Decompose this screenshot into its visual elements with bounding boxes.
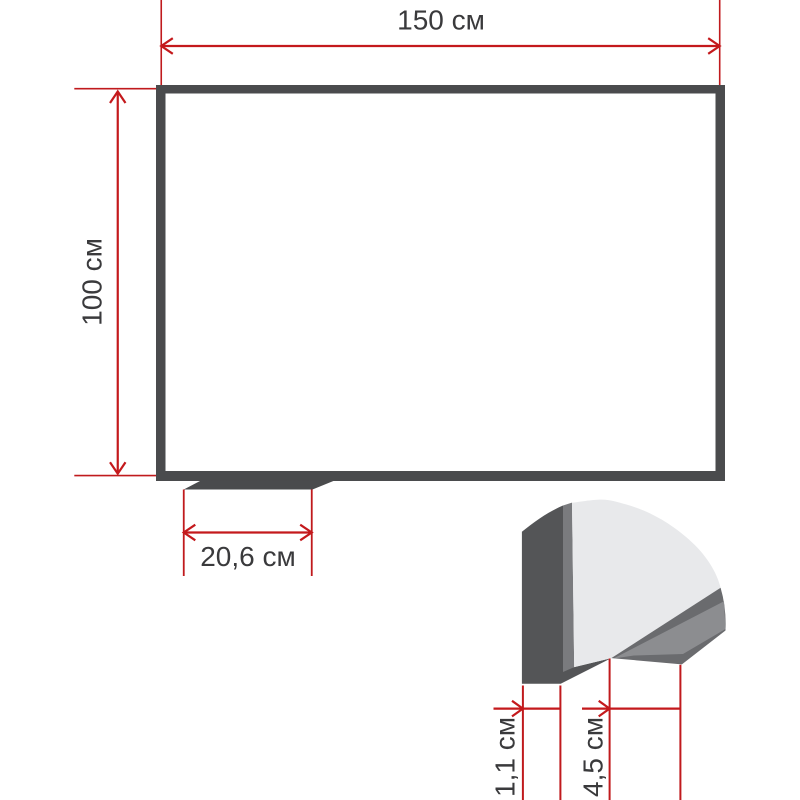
svg-text:20,6 см: 20,6 см <box>200 541 296 572</box>
svg-text:1,1 см: 1,1 см <box>490 717 521 797</box>
svg-text:100 см: 100 см <box>76 238 107 326</box>
svg-text:150 см: 150 см <box>397 5 485 36</box>
svg-text:4,5 см: 4,5 см <box>578 717 609 797</box>
